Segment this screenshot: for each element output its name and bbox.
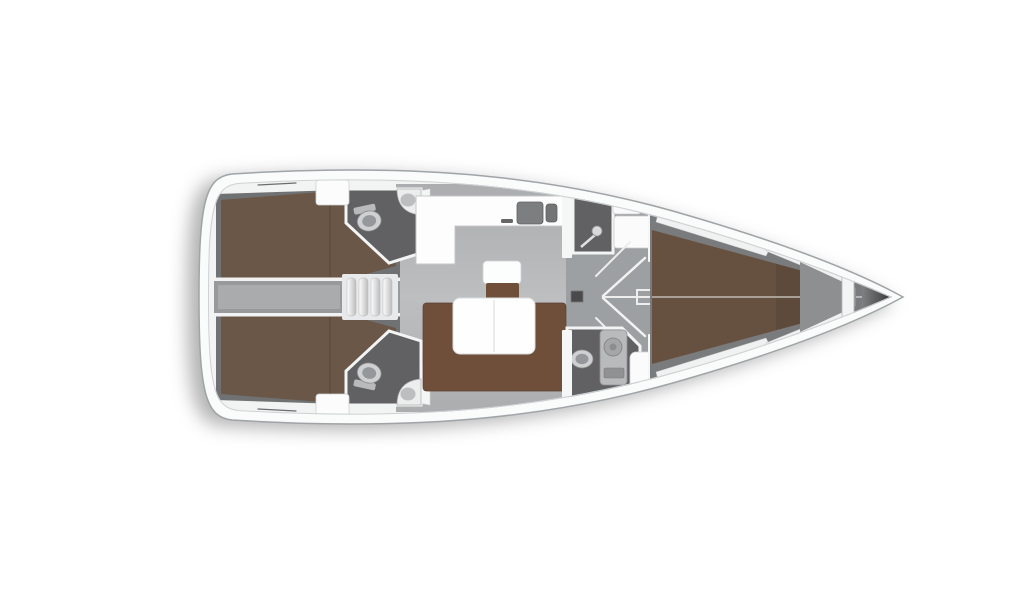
salon-stool bbox=[486, 283, 519, 300]
sink-basin bbox=[401, 194, 416, 207]
portlight-icon bbox=[676, 385, 695, 392]
salon-stool-top bbox=[483, 261, 521, 284]
faucet-icon bbox=[501, 219, 513, 223]
stair-treads-icon bbox=[371, 278, 380, 316]
stair-treads-icon bbox=[359, 278, 368, 316]
deck-hatch bbox=[316, 180, 349, 205]
companionway-stairs bbox=[342, 274, 398, 320]
shower-head-icon bbox=[592, 226, 602, 236]
boat-floor-plan bbox=[0, 0, 1024, 600]
double-sink-icon bbox=[546, 204, 557, 222]
double-sink-icon bbox=[517, 202, 543, 224]
engine-bay-inner bbox=[218, 285, 340, 309]
floor-hatch bbox=[571, 291, 583, 302]
shower-column-icon bbox=[600, 330, 627, 385]
portlight-icon bbox=[676, 202, 695, 209]
interior bbox=[199, 162, 909, 432]
floor-plan-svg bbox=[0, 0, 1024, 600]
stair-treads-icon bbox=[383, 278, 392, 316]
toilet-icon bbox=[576, 354, 589, 364]
sink-basin bbox=[401, 388, 416, 401]
portlight-icon bbox=[597, 408, 617, 413]
portlight-icon bbox=[597, 181, 617, 186]
stair-treads-icon bbox=[347, 278, 356, 316]
